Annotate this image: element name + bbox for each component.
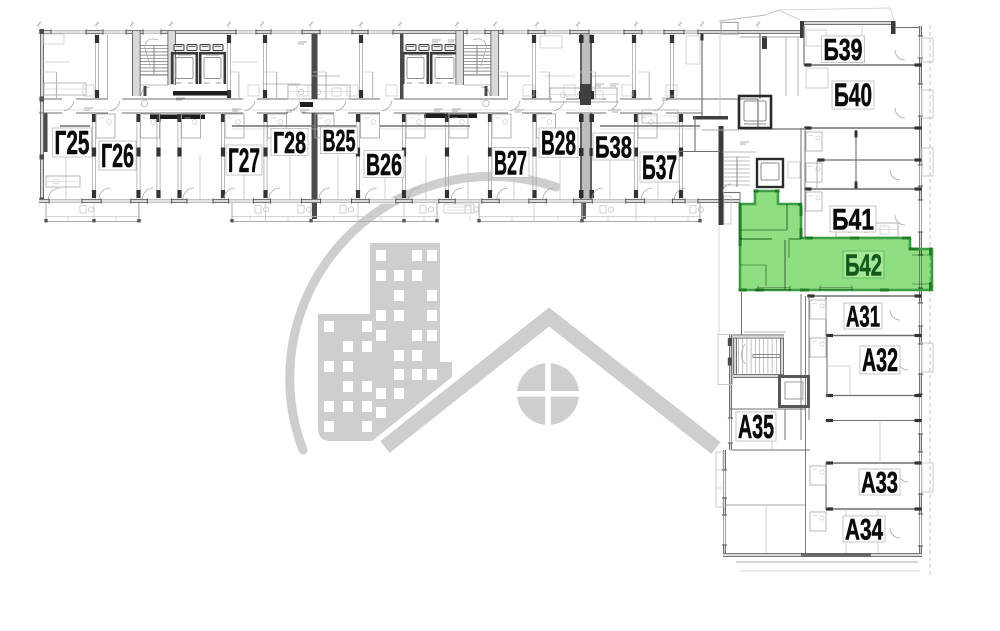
svg-text:Б38: Б38 [595, 129, 632, 164]
svg-text:Г25: Г25 [55, 125, 90, 162]
svg-text:Б42: Б42 [845, 247, 882, 282]
svg-text:Б40: Б40 [834, 77, 872, 113]
svg-text:В28: В28 [541, 125, 576, 163]
svg-text:Г28: Г28 [273, 125, 306, 160]
svg-text:В27: В27 [494, 145, 527, 183]
svg-text:В25: В25 [323, 124, 356, 158]
svg-text:А31: А31 [846, 300, 880, 333]
svg-text:Б41: Б41 [832, 203, 874, 236]
svg-text:В26: В26 [366, 147, 402, 182]
svg-text:А32: А32 [862, 342, 898, 378]
svg-text:Б39: Б39 [824, 33, 863, 67]
svg-text:А34: А34 [845, 513, 883, 546]
svg-text:А33: А33 [861, 466, 898, 499]
svg-text:Г26: Г26 [101, 138, 134, 175]
svg-text:Б37: Б37 [642, 149, 677, 187]
svg-text:А35: А35 [738, 409, 774, 446]
svg-text:Г27: Г27 [228, 142, 260, 180]
